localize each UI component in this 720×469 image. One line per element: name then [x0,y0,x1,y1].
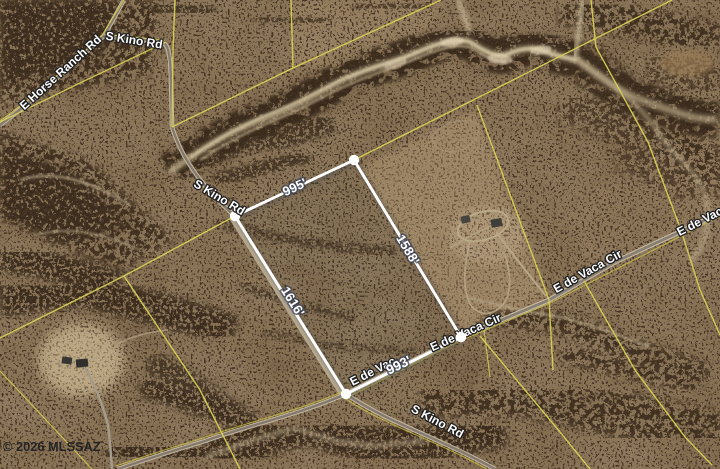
svg-text:© 2026 MLSSAZ: © 2026 MLSSAZ [3,439,101,454]
